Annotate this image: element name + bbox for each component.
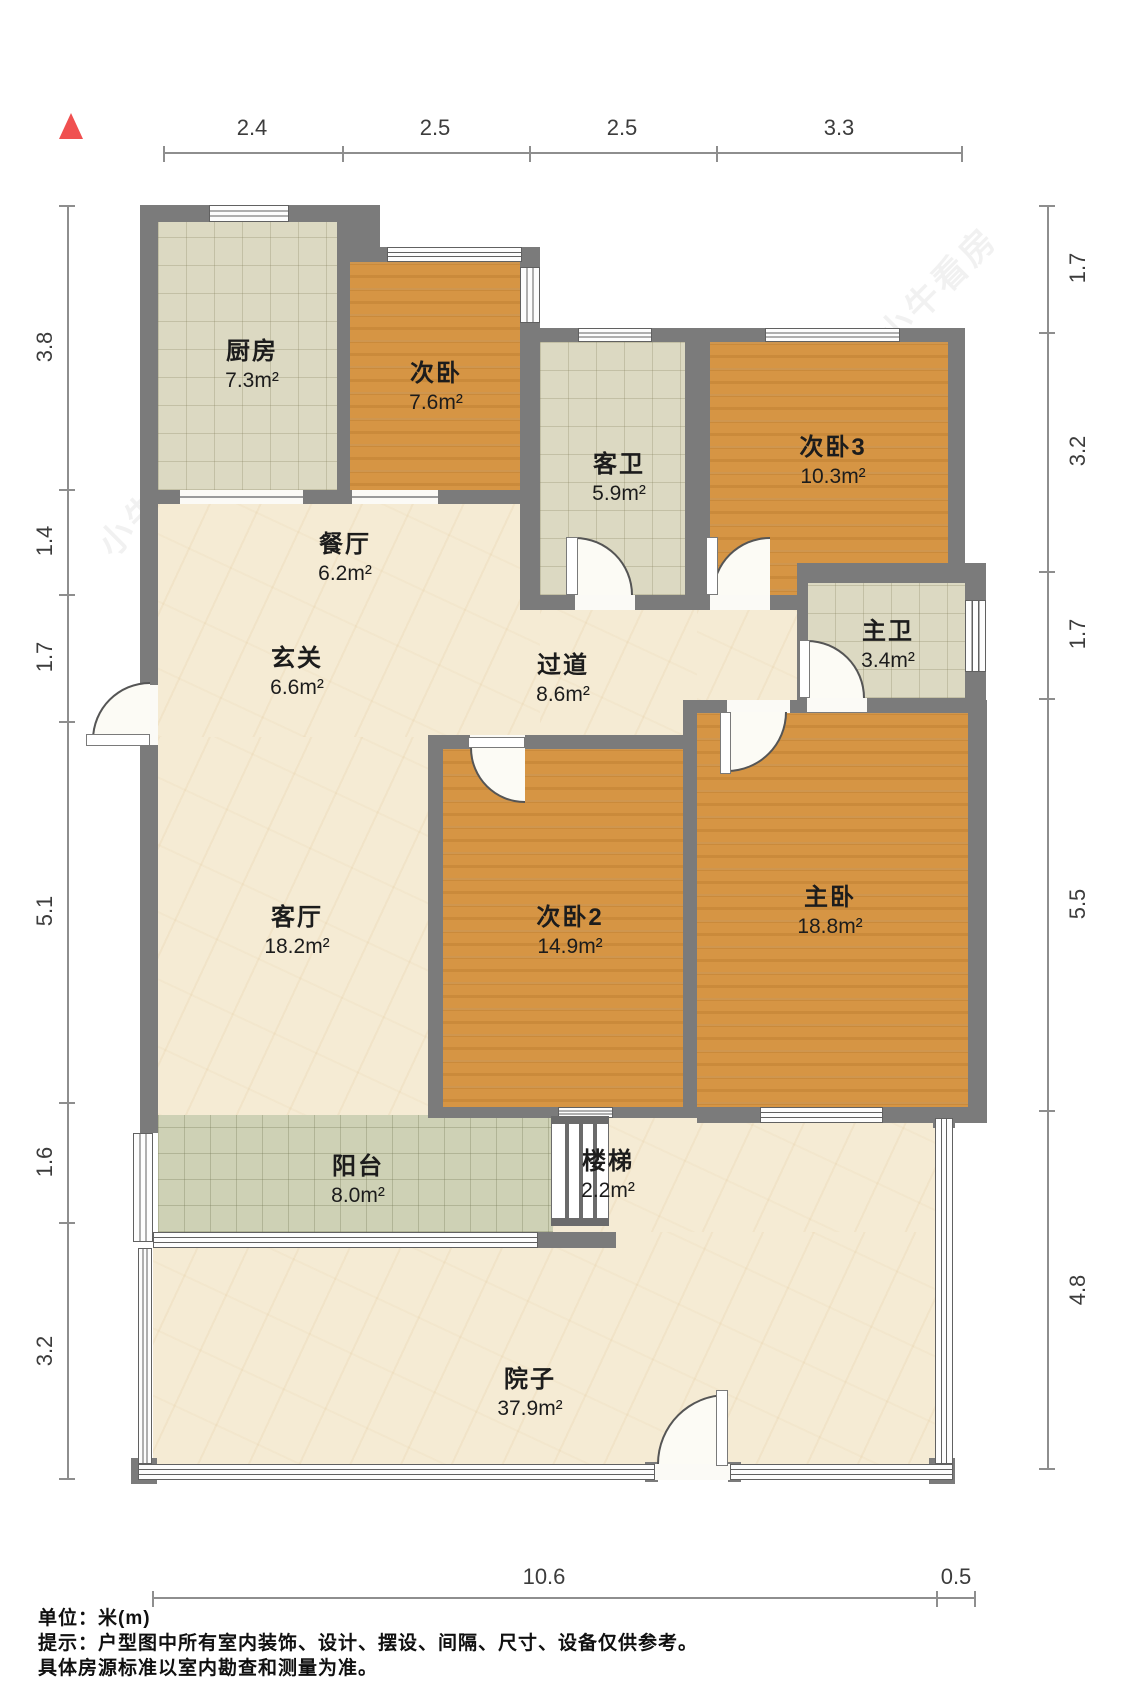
yard-fence-left [138, 1248, 152, 1464]
room-label-living: 客厅 18.2m² [264, 897, 329, 959]
tip-note-line1: 提示：户型图中所有室内装饰、设计、摆设、间隔、尺寸、设备仅供参考。 [38, 1628, 698, 1655]
window [209, 205, 289, 222]
entry-door-leaf [86, 734, 150, 746]
room-area: 2.2m² [581, 1179, 635, 1203]
room-area: 37.9m² [497, 1397, 562, 1421]
dimension-label: 3.2 [1065, 436, 1091, 467]
dimension-tick [974, 1591, 976, 1607]
dimension-tick [936, 1591, 938, 1607]
yard-fence-bottom [730, 1464, 953, 1480]
room-area: 7.3m² [225, 369, 279, 393]
dimension-label: 1.7 [32, 642, 58, 673]
room-area: 18.2m² [264, 935, 329, 959]
dimension-label: 5.5 [1065, 889, 1091, 920]
window [520, 267, 540, 323]
room-name: 楼梯 [581, 1141, 635, 1176]
entry-door-arc [92, 682, 150, 740]
floor-plan: 小牛看房 小牛看房 小牛看房 小牛看房 [0, 0, 1125, 1683]
dimension-tick [59, 721, 75, 723]
room-yard-floor [153, 1232, 935, 1464]
balcony-railing [153, 1232, 538, 1248]
room-name: 玄关 [270, 638, 324, 673]
room-label-foyer: 玄关 6.6m² [270, 638, 324, 700]
wall [428, 735, 443, 1118]
dimension-label: 1.7 [1065, 619, 1091, 650]
room-name: 阳台 [331, 1146, 385, 1181]
wall [337, 222, 350, 504]
room-area: 8.0m² [331, 1184, 385, 1208]
wall [948, 328, 965, 563]
dimension-tick [59, 1478, 75, 1480]
window [965, 600, 986, 672]
kitchen-opening [180, 490, 303, 504]
dimension-label: 1.4 [32, 526, 58, 557]
dimension-tick [59, 1102, 75, 1104]
wall [140, 745, 158, 1133]
dimension-tick [59, 205, 75, 207]
yard-fence-right [935, 1118, 953, 1464]
room-area: 6.6m² [270, 676, 324, 700]
bedroom3-door-leaf [706, 537, 718, 595]
yard-gate-opening [655, 1464, 730, 1480]
dimension-tick [59, 489, 75, 491]
dimension-label: 3.8 [32, 332, 58, 363]
window [765, 328, 900, 342]
dimension-line-bottom [152, 1597, 976, 1599]
room-area: 10.3m² [799, 465, 866, 489]
balcony-window [133, 1133, 153, 1242]
dimension-label: 3.3 [824, 115, 855, 141]
room-area: 14.9m² [536, 935, 603, 959]
dimension-label: 2.5 [420, 115, 451, 141]
dimension-tick [1039, 1110, 1055, 1112]
dimension-line-top [163, 152, 962, 154]
room-name: 次卧 [409, 353, 463, 388]
room-area: 6.2m² [318, 562, 372, 586]
tip-note-line2: 具体房源标准以室内勘查和测量为准。 [38, 1653, 378, 1680]
room-name: 主卧 [797, 877, 862, 912]
dimension-line-left [67, 205, 69, 1480]
room-label-kitchen: 厨房 7.3m² [225, 331, 279, 393]
north-arrow-icon [59, 113, 83, 139]
room-area: 18.8m² [797, 915, 862, 939]
room-name: 次卧3 [799, 427, 866, 462]
dimension-tick [1039, 332, 1055, 334]
dimension-tick [961, 146, 963, 162]
dimension-tick [1039, 1468, 1055, 1470]
dimension-tick [342, 146, 344, 162]
guest-bath-opening [575, 595, 635, 610]
dimension-label: 1.6 [32, 1147, 58, 1178]
room-area: 5.9m² [592, 482, 646, 506]
bedroom2-door-leaf [468, 737, 525, 748]
wall [797, 563, 986, 583]
guest-bath-door-leaf [566, 537, 578, 595]
bedroom3-opening [710, 595, 770, 610]
room-label-bedroom-top: 次卧 7.6m² [409, 353, 463, 415]
room-label-bedroom3: 次卧3 10.3m² [799, 427, 866, 489]
wall [538, 1232, 616, 1248]
room-name: 院子 [497, 1359, 562, 1394]
dimension-tick [59, 594, 75, 596]
dimension-label: 10.6 [523, 1564, 566, 1590]
dimension-label: 0.5 [941, 1564, 972, 1590]
dimension-label: 4.8 [1065, 1275, 1091, 1306]
dimension-label: 1.7 [1065, 253, 1091, 284]
room-hallway-floor [697, 610, 797, 700]
dimension-tick [163, 146, 165, 162]
room-label-dining: 餐厅 6.2m² [318, 524, 372, 586]
room-label-master-bath: 主卫 3.4m² [861, 611, 915, 673]
dimension-tick [1039, 571, 1055, 573]
room-area: 3.4m² [861, 649, 915, 673]
window [387, 247, 522, 262]
room-name: 厨房 [225, 331, 279, 366]
room-name: 过道 [536, 645, 590, 680]
dimension-tick [1039, 698, 1055, 700]
dimension-label: 2.5 [607, 115, 638, 141]
dimension-line-right [1047, 205, 1049, 1470]
room-label-balcony: 阳台 8.0m² [331, 1146, 385, 1208]
room-label-master: 主卧 18.8m² [797, 877, 862, 939]
yard-fence-bottom [138, 1464, 655, 1480]
room-label-yard: 院子 37.9m² [497, 1359, 562, 1421]
wall [683, 700, 697, 1107]
room-label-bedroom2: 次卧2 14.9m² [536, 897, 603, 959]
dimension-label: 5.1 [32, 896, 58, 927]
dimension-tick [1039, 205, 1055, 207]
room-area: 7.6m² [409, 391, 463, 415]
room-area: 8.6m² [536, 683, 590, 707]
room-name: 客卫 [592, 444, 646, 479]
dimension-tick [716, 146, 718, 162]
room-label-hallway: 过道 8.6m² [536, 645, 590, 707]
master-bath-door-leaf [799, 640, 810, 698]
dimension-tick [59, 1222, 75, 1224]
window [578, 328, 652, 342]
window [760, 1107, 883, 1123]
yard-gate-leaf [716, 1390, 728, 1466]
room-name: 主卫 [861, 611, 915, 646]
master-door-leaf [720, 712, 731, 774]
dimension-tick [529, 146, 531, 162]
room-label-guest-bath: 客卫 5.9m² [592, 444, 646, 506]
unit-note: 单位：米(m) [38, 1603, 151, 1630]
wall [140, 205, 158, 685]
room-label-stairs: 楼梯 2.2m² [581, 1141, 635, 1203]
dimension-label: 3.2 [32, 1336, 58, 1367]
dimension-label: 2.4 [237, 115, 268, 141]
room-name: 餐厅 [318, 524, 372, 559]
wall [968, 712, 987, 1123]
room-name: 客厅 [264, 897, 329, 932]
dimension-tick [152, 1591, 154, 1607]
room-name: 次卧2 [536, 897, 603, 932]
master-bath-opening [807, 698, 867, 712]
bedroom-top-opening [352, 490, 438, 504]
